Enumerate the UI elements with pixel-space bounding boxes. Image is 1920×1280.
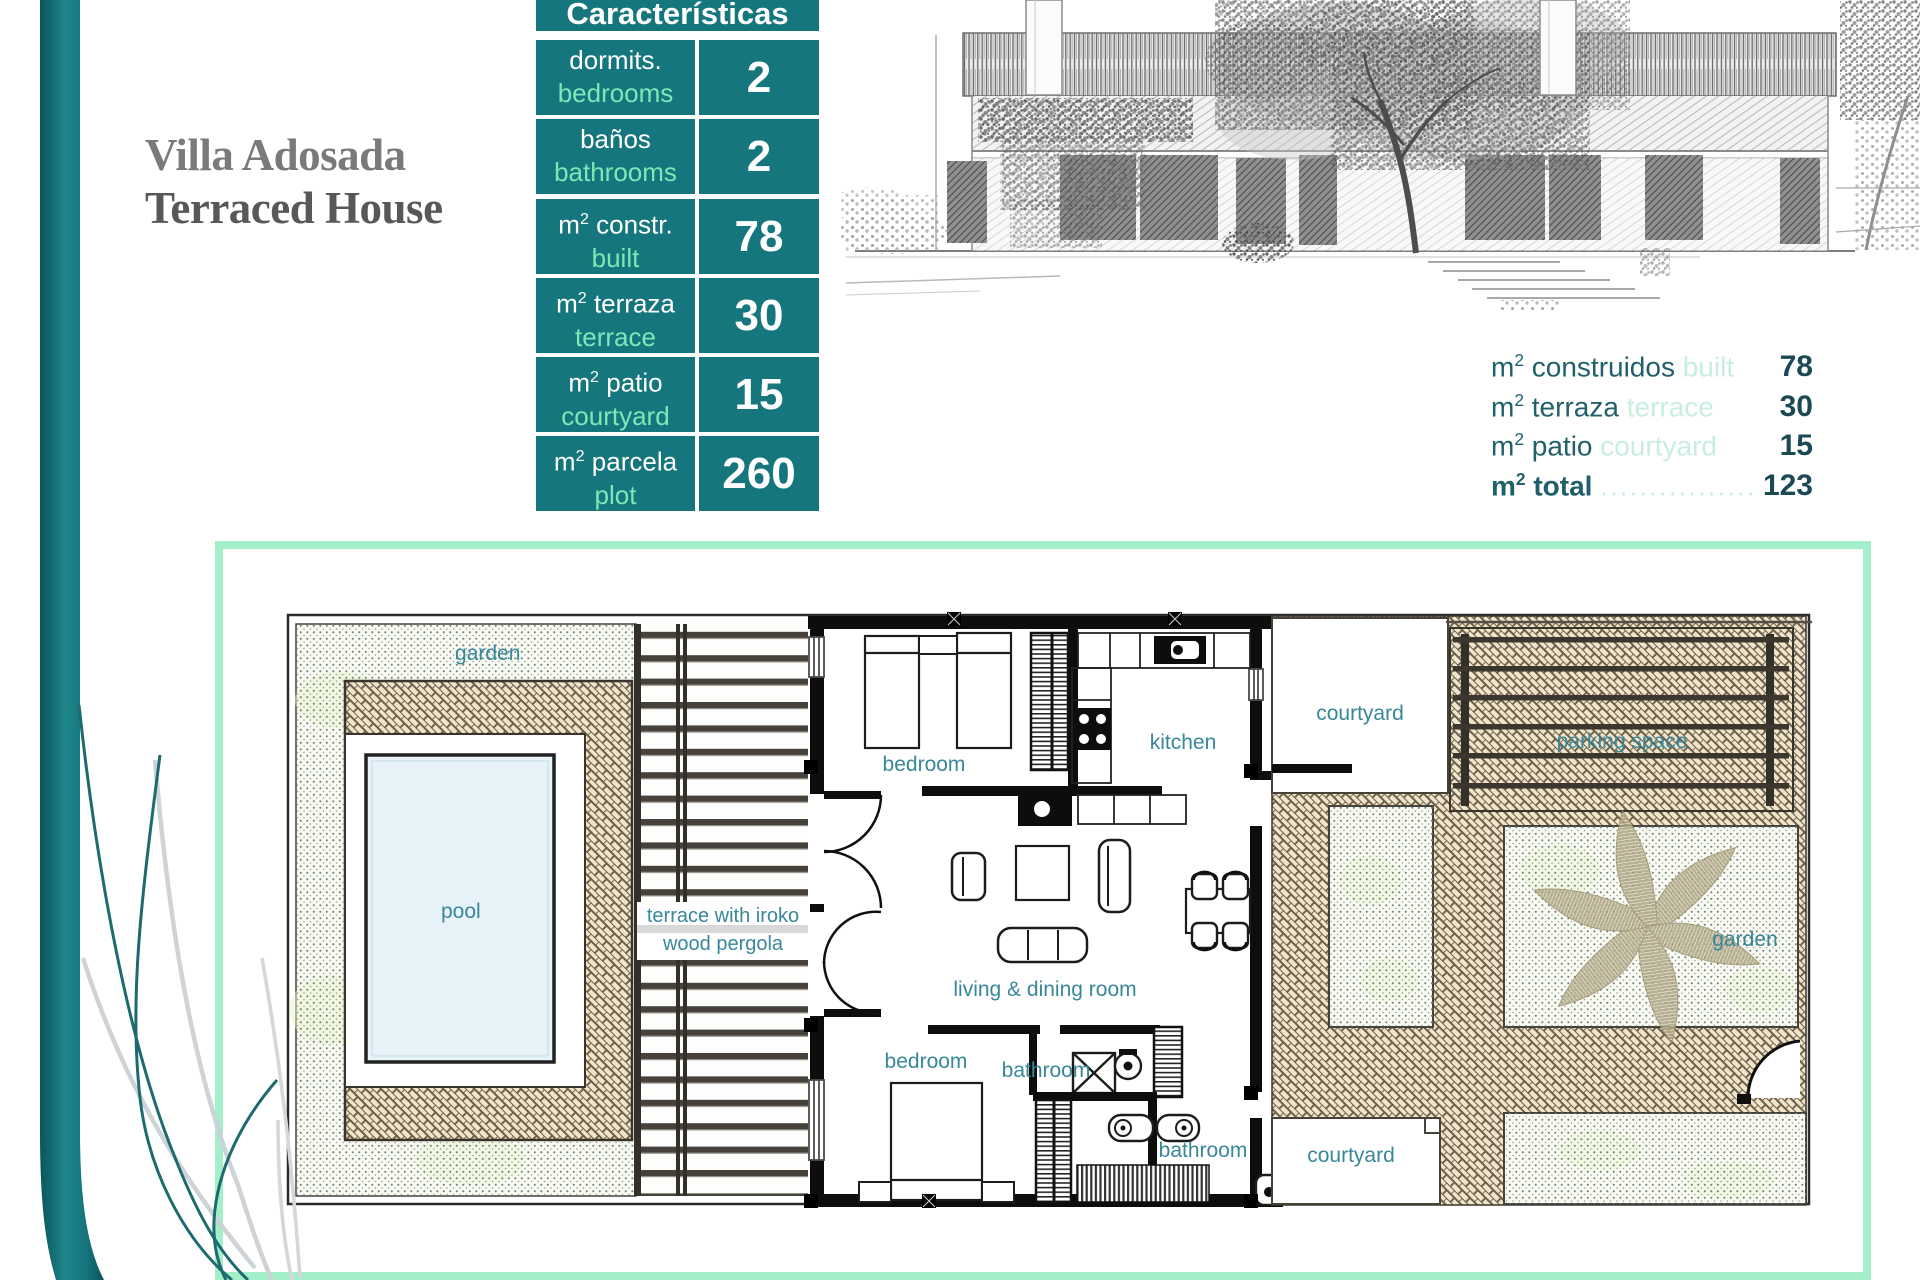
svg-text:garden: garden xyxy=(1712,928,1777,951)
svg-text:courtyard: courtyard xyxy=(1307,1144,1395,1167)
svg-text:bathroom: bathroom xyxy=(1159,1139,1248,1162)
svg-text:kitchen: kitchen xyxy=(1150,731,1217,754)
svg-text:bedroom: bedroom xyxy=(885,1050,968,1073)
svg-text:bedroom: bedroom xyxy=(883,753,966,776)
svg-text:parking space: parking space xyxy=(1557,730,1688,753)
svg-text:courtyard: courtyard xyxy=(1316,702,1404,725)
svg-text:bathroom: bathroom xyxy=(1002,1059,1091,1082)
svg-text:living & dining room: living & dining room xyxy=(953,978,1136,1001)
